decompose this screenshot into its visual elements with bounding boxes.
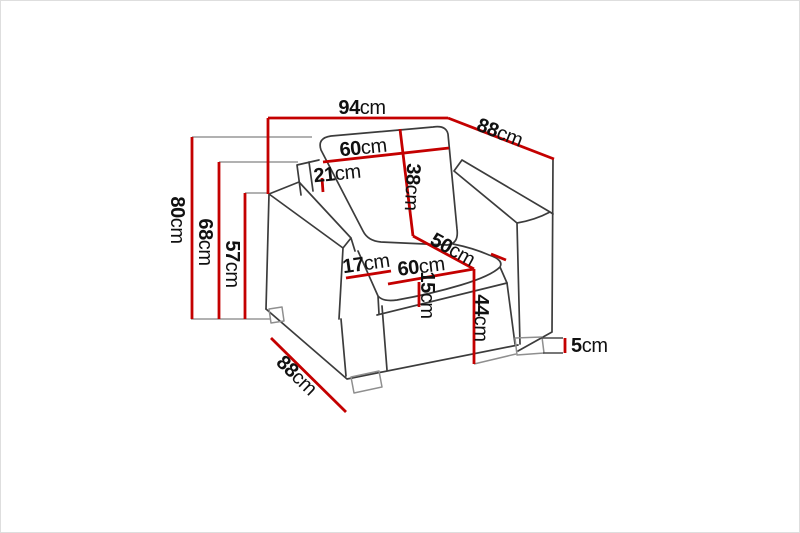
armchair-dimension-diagram: 94cm 88cm 60cm 21cm 38cm 80cm 68cm 57cm …: [1, 1, 800, 533]
label-seat-height: 44cm: [470, 294, 493, 342]
label-back-cushion-width: 60cm: [338, 135, 387, 162]
label-overall-width: 94cm: [338, 97, 385, 119]
diagram-canvas: 94cm 88cm 60cm 21cm 38cm 80cm 68cm 57cm …: [0, 0, 800, 533]
under-base-line: [474, 354, 516, 364]
label-overall-height: 80cm: [166, 196, 188, 243]
label-overall-depth-top: 88cm: [474, 114, 526, 151]
label-seat-cushion-thickness: 15cm: [416, 271, 438, 318]
label-overall-depth-bottom: 88cm: [272, 351, 321, 400]
left-armrest: [266, 182, 355, 319]
label-seat-back-height: 57cm: [221, 240, 243, 287]
label-armrest-height: 68cm: [194, 218, 216, 265]
front-left-leg: [351, 371, 382, 393]
label-back-cushion-height: 38cm: [400, 163, 424, 211]
label-leg-height: 5cm: [571, 335, 608, 357]
label-armrest-width: 17cm: [341, 250, 391, 278]
label-back-panel-gap: 21cm: [312, 161, 361, 188]
dimension-labels: 94cm 88cm 60cm 21cm 38cm 80cm 68cm 57cm …: [166, 97, 608, 400]
back-left-leg: [269, 307, 284, 323]
